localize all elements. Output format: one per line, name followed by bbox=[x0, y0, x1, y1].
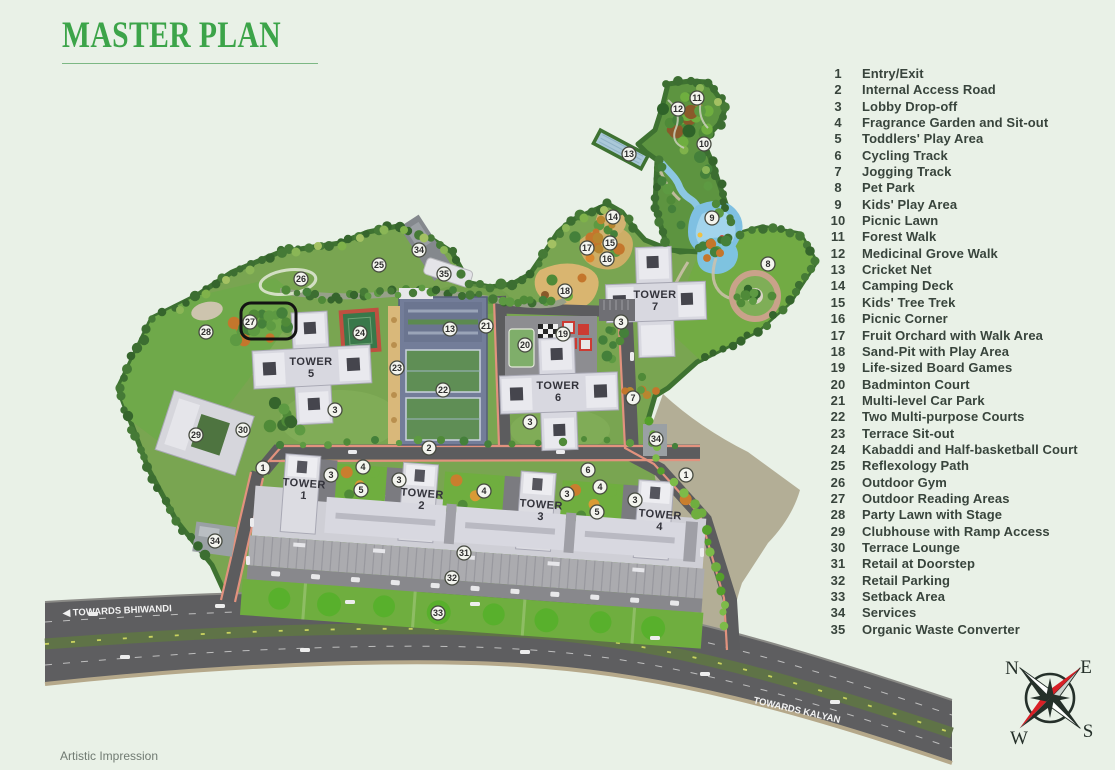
svg-text:3: 3 bbox=[632, 495, 637, 505]
svg-text:25: 25 bbox=[374, 260, 384, 270]
svg-text:TOWER: TOWER bbox=[289, 356, 332, 368]
svg-text:1: 1 bbox=[300, 490, 307, 502]
svg-text:3: 3 bbox=[564, 489, 569, 499]
svg-text:35: 35 bbox=[439, 269, 449, 279]
svg-text:34: 34 bbox=[651, 434, 661, 444]
svg-text:10: 10 bbox=[699, 139, 709, 149]
svg-text:21: 21 bbox=[481, 321, 491, 331]
svg-text:29: 29 bbox=[191, 430, 201, 440]
svg-text:TOWER: TOWER bbox=[633, 289, 676, 301]
svg-text:7: 7 bbox=[652, 301, 658, 313]
svg-text:4: 4 bbox=[597, 482, 602, 492]
svg-text:2: 2 bbox=[418, 500, 425, 512]
svg-text:33: 33 bbox=[433, 608, 443, 618]
svg-text:3: 3 bbox=[396, 475, 401, 485]
svg-text:15: 15 bbox=[605, 238, 615, 248]
svg-text:5: 5 bbox=[358, 485, 363, 495]
svg-text:30: 30 bbox=[238, 425, 248, 435]
svg-text:17: 17 bbox=[582, 243, 592, 253]
svg-text:3: 3 bbox=[527, 417, 532, 427]
svg-text:13: 13 bbox=[624, 149, 634, 159]
svg-text:11: 11 bbox=[692, 93, 702, 103]
svg-text:6: 6 bbox=[555, 392, 561, 404]
svg-text:24: 24 bbox=[355, 328, 365, 338]
svg-text:12: 12 bbox=[673, 104, 683, 114]
svg-text:4: 4 bbox=[360, 462, 365, 472]
svg-text:7: 7 bbox=[630, 393, 635, 403]
svg-text:28: 28 bbox=[201, 327, 211, 337]
svg-text:26: 26 bbox=[296, 274, 306, 284]
svg-text:5: 5 bbox=[308, 368, 314, 380]
svg-text:6: 6 bbox=[585, 465, 590, 475]
svg-text:2: 2 bbox=[426, 443, 431, 453]
svg-text:16: 16 bbox=[602, 254, 612, 264]
svg-text:8: 8 bbox=[765, 259, 770, 269]
svg-text:3: 3 bbox=[618, 317, 623, 327]
svg-text:14: 14 bbox=[608, 212, 618, 222]
svg-text:N: N bbox=[1005, 658, 1019, 679]
svg-text:34: 34 bbox=[414, 245, 424, 255]
svg-text:S: S bbox=[1083, 721, 1094, 742]
svg-text:TOWER: TOWER bbox=[536, 380, 579, 392]
svg-text:22: 22 bbox=[438, 385, 448, 395]
svg-text:1: 1 bbox=[683, 470, 688, 480]
svg-text:34: 34 bbox=[210, 536, 220, 546]
svg-text:W: W bbox=[1010, 728, 1028, 749]
svg-text:31: 31 bbox=[459, 548, 469, 558]
svg-text:18: 18 bbox=[560, 286, 570, 296]
svg-text:23: 23 bbox=[392, 363, 402, 373]
svg-text:3: 3 bbox=[332, 405, 337, 415]
svg-text:19: 19 bbox=[558, 329, 568, 339]
svg-text:13: 13 bbox=[445, 324, 455, 334]
svg-text:3: 3 bbox=[328, 470, 333, 480]
svg-text:3: 3 bbox=[537, 511, 544, 523]
svg-text:32: 32 bbox=[447, 573, 457, 583]
svg-text:E: E bbox=[1080, 657, 1092, 678]
svg-text:5: 5 bbox=[594, 507, 599, 517]
svg-text:27: 27 bbox=[245, 317, 255, 327]
svg-text:20: 20 bbox=[520, 340, 530, 350]
svg-text:9: 9 bbox=[709, 213, 714, 223]
svg-text:1: 1 bbox=[260, 463, 265, 473]
svg-text:4: 4 bbox=[481, 486, 486, 496]
